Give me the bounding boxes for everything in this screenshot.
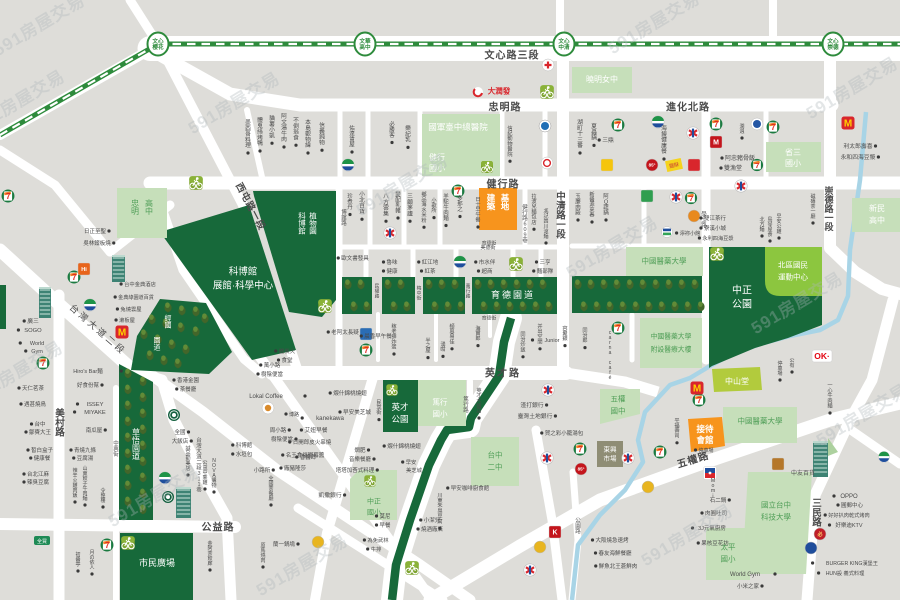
svg-text:康: 康 <box>661 141 667 149</box>
svg-text:中友百貨: 中友百貨 <box>791 469 815 477</box>
svg-text:英才路: 英才路 <box>484 367 521 380</box>
svg-text:春: 春 <box>589 211 594 219</box>
svg-text:銀: 銀 <box>562 334 567 342</box>
svg-text:院: 院 <box>507 150 513 158</box>
svg-text:香醬郎: 香醬郎 <box>300 453 317 461</box>
svg-text:櫻花: 櫻花 <box>151 43 164 51</box>
svg-text:經: 經 <box>165 313 172 322</box>
svg-text:科博館: 科博館 <box>229 265 258 277</box>
svg-text:蛋: 蛋 <box>391 343 396 351</box>
svg-text:樂: 樂 <box>405 124 411 132</box>
svg-text:食: 食 <box>767 231 772 238</box>
svg-text:飩: 飩 <box>319 133 325 141</box>
svg-text:科博館: 科博館 <box>236 441 253 449</box>
svg-text:雙江茶行: 雙江茶行 <box>704 214 727 222</box>
svg-text:茅: 茅 <box>407 204 413 212</box>
svg-text:高中: 高中 <box>359 43 371 51</box>
svg-text:é: é <box>609 375 612 381</box>
svg-text:鮮魚北王蒼鮮肉: 鮮魚北王蒼鮮肉 <box>599 562 638 570</box>
svg-text:園: 園 <box>154 336 161 344</box>
svg-text:早餐: 早餐 <box>379 521 391 529</box>
svg-text:台中: 台中 <box>34 420 45 428</box>
svg-text:鍋: 鍋 <box>591 134 597 142</box>
svg-text:文華: 文華 <box>359 37 371 45</box>
svg-text:信: 信 <box>319 121 325 129</box>
svg-text:雙漁堂: 雙漁堂 <box>724 164 742 172</box>
svg-text:HUN設 義式料理: HUN設 義式料理 <box>826 569 865 577</box>
svg-text:7: 7 <box>771 123 776 132</box>
svg-text:台中金典酒店: 台中金典酒店 <box>124 280 156 288</box>
svg-text:音樂餐廳: 音樂餐廳 <box>349 455 372 463</box>
svg-text:司: 司 <box>674 432 679 439</box>
svg-text:春友海鮮餐廳: 春友海鮮餐廳 <box>598 549 632 557</box>
svg-text:亭: 亭 <box>75 561 80 568</box>
svg-text:文心路三段: 文心路三段 <box>485 49 540 62</box>
svg-text:之: 之 <box>457 205 463 213</box>
svg-text:凱: 凱 <box>269 131 275 139</box>
svg-text:海: 海 <box>661 124 667 132</box>
svg-text:文: 文 <box>281 118 287 126</box>
svg-text:物: 物 <box>211 482 216 489</box>
svg-text:蘭一鍋塢: 蘭一鍋塢 <box>273 540 296 548</box>
svg-text:廳: 廳 <box>268 495 273 502</box>
svg-text:BURGER KING漢堡王: BURGER KING漢堡王 <box>826 559 878 567</box>
svg-text:永利四海豆漿: 永利四海豆漿 <box>702 234 733 242</box>
svg-text:廳: 廳 <box>810 213 815 220</box>
svg-text:中: 中 <box>145 206 153 216</box>
svg-text:小: 小 <box>269 126 275 134</box>
svg-text:艾妞早餐: 艾妞早餐 <box>304 426 327 434</box>
svg-text:郎: 郎 <box>582 336 587 344</box>
svg-text:番: 番 <box>577 142 583 149</box>
svg-text:7: 7 <box>714 120 719 129</box>
svg-text:7: 7 <box>364 346 369 355</box>
svg-text:麵: 麵 <box>443 214 449 222</box>
svg-text:鴨: 鴨 <box>257 139 263 147</box>
svg-text:早安: 早安 <box>406 458 417 466</box>
svg-text:Hiro's Bar麵: Hiro's Bar麵 <box>73 367 103 375</box>
svg-text:英才: 英才 <box>391 402 408 412</box>
svg-text:7: 7 <box>689 194 693 203</box>
svg-text:義: 義 <box>319 127 325 135</box>
svg-text:地: 地 <box>501 201 510 211</box>
svg-text:台北江麻: 台北江麻 <box>27 470 50 478</box>
svg-text:牛排: 牛排 <box>371 545 382 553</box>
svg-text:紅江地: 紅江地 <box>422 258 439 266</box>
svg-text:7: 7 <box>456 187 461 196</box>
svg-text:顧: 顧 <box>407 198 413 206</box>
svg-text:接待: 接待 <box>696 424 714 434</box>
svg-text:食堂: 食堂 <box>281 356 293 364</box>
svg-text:水垣包: 水垣包 <box>236 450 253 458</box>
svg-text:7: 7 <box>658 448 663 457</box>
svg-text:小米之家: 小米之家 <box>737 582 760 590</box>
svg-text:ISSEY: ISSEY <box>86 402 103 408</box>
svg-text:段: 段 <box>824 221 834 232</box>
svg-text:忠明路: 忠明路 <box>489 101 522 114</box>
svg-text:飯: 飯 <box>72 492 77 499</box>
svg-text:85°: 85° <box>578 467 585 472</box>
svg-text:豆腐湯: 豆腐湯 <box>77 454 94 462</box>
svg-text:全國: 全國 <box>174 428 186 436</box>
svg-text:餐: 餐 <box>475 216 481 224</box>
svg-text:阿忠豬骨飯: 阿忠豬骨飯 <box>725 154 755 162</box>
svg-text:麵部隊: 麵部隊 <box>537 267 554 275</box>
svg-text:M: M <box>693 383 701 394</box>
svg-text:客: 客 <box>389 131 395 139</box>
svg-text:全買: 全買 <box>37 538 47 545</box>
svg-text:道: 道 <box>132 451 140 461</box>
svg-text:湖: 湖 <box>577 118 583 126</box>
svg-text:公益路: 公益路 <box>202 521 235 534</box>
svg-text:燒酒廠店: 燒酒廠店 <box>421 525 444 533</box>
svg-text:為免武林: 為免武林 <box>367 536 389 544</box>
svg-text:高中: 高中 <box>869 215 885 225</box>
svg-text:文心: 文心 <box>558 37 570 45</box>
svg-text:十: 十 <box>577 130 583 138</box>
svg-text:煨什錦桃燒翅: 煨什錦桃燒翅 <box>333 389 367 397</box>
svg-text:曉明女中: 曉明女中 <box>586 74 618 84</box>
svg-text:健康: 健康 <box>386 267 398 275</box>
svg-text:廬: 廬 <box>407 209 413 217</box>
svg-text:餐: 餐 <box>661 147 667 155</box>
svg-text:薯: 薯 <box>269 120 275 128</box>
svg-text:日開郎皮火串燒: 日開郎皮火串燒 <box>293 438 332 446</box>
svg-text:絲: 絲 <box>257 128 263 136</box>
svg-text:好樂迪KTV: 好樂迪KTV <box>835 521 863 529</box>
svg-text:兔燒雲屋: 兔燒雲屋 <box>120 305 141 313</box>
svg-text:丹: 丹 <box>347 204 353 211</box>
svg-text:巷: 巷 <box>196 485 202 493</box>
svg-text:辣臭豆腐: 辣臭豆腐 <box>27 478 50 486</box>
svg-text:萬小路: 萬小路 <box>264 361 281 369</box>
svg-text:晨香早午餐: 晨香早午餐 <box>364 332 392 340</box>
svg-text:阿: 阿 <box>281 112 287 120</box>
svg-text:廣三: 廣三 <box>27 317 39 325</box>
svg-text:OPPO: OPPO <box>840 494 858 500</box>
svg-text:牛: 牛 <box>281 129 287 137</box>
svg-text:中國醫藥大學: 中國醫藥大學 <box>738 416 783 426</box>
svg-text:國小: 國小 <box>785 159 801 168</box>
svg-text:果核豆花坊: 果核豆花坊 <box>701 539 729 547</box>
svg-text:日正至聖: 日正至聖 <box>84 228 107 235</box>
svg-text:鬼: 鬼 <box>257 122 263 130</box>
svg-text:大潤發: 大潤發 <box>488 86 511 96</box>
svg-text:文心: 文心 <box>827 37 839 45</box>
svg-text:湯: 湯 <box>281 124 287 132</box>
svg-text:貓: 貓 <box>269 114 275 122</box>
svg-text:國中: 國中 <box>611 406 626 416</box>
svg-text:巷: 巷 <box>522 236 528 244</box>
svg-text:7: 7 <box>616 324 621 333</box>
svg-text:附設醫療大樓: 附設醫療大樓 <box>651 344 692 353</box>
svg-text:麵: 麵 <box>82 495 87 502</box>
svg-text:食: 食 <box>293 133 299 141</box>
svg-text:Hi: Hi <box>81 267 87 273</box>
svg-text:烤: 烤 <box>257 133 263 141</box>
svg-text:SOGO: SOGO <box>24 328 42 334</box>
svg-text:有: 有 <box>789 362 794 369</box>
svg-text:週: 週 <box>739 128 744 135</box>
svg-text:台中: 台中 <box>488 450 503 460</box>
svg-text:渣打銀行: 渣打銀行 <box>520 401 543 409</box>
svg-text:大阪燒急速烤: 大阪燒急速烤 <box>595 536 629 544</box>
svg-text:天仁茗茶: 天仁茗茶 <box>22 384 45 392</box>
svg-text:中清: 中清 <box>558 43 570 51</box>
svg-text:遇甚燒鳥: 遇甚燒鳥 <box>24 400 47 408</box>
svg-text:屋: 屋 <box>425 347 430 354</box>
svg-text:館: 館 <box>298 226 306 236</box>
svg-text:7: 7 <box>72 273 77 282</box>
svg-text:園: 園 <box>309 227 317 236</box>
svg-text:7: 7 <box>6 192 11 201</box>
svg-text:公園: 公園 <box>391 414 408 424</box>
svg-text:物: 物 <box>305 135 311 143</box>
svg-text:大飯店: 大飯店 <box>172 437 189 445</box>
svg-text:饅: 饅 <box>661 130 667 138</box>
svg-text:南瓜屋: 南瓜屋 <box>86 426 103 434</box>
svg-text:樹陰便當: 樹陰便當 <box>261 370 284 378</box>
svg-text:M: M <box>118 327 126 338</box>
svg-text:臺灣土地銀行: 臺灣土地銀行 <box>518 412 553 420</box>
svg-text:街: 街 <box>417 294 422 301</box>
svg-text:雞: 雞 <box>776 228 781 235</box>
svg-text:路: 路 <box>812 516 822 528</box>
svg-text:文心: 文心 <box>152 37 164 45</box>
svg-text:本: 本 <box>305 118 311 126</box>
svg-text:料: 料 <box>245 135 251 143</box>
svg-text:Junior: Junior <box>545 338 560 344</box>
svg-text:東興: 東興 <box>604 444 618 453</box>
svg-text:鍋: 鍋 <box>603 208 609 216</box>
svg-text:殿: 殿 <box>575 209 581 216</box>
svg-text:皙白盒子: 皙白盒子 <box>31 446 54 454</box>
svg-text:國: 國 <box>165 321 172 329</box>
svg-text:物: 物 <box>319 138 325 146</box>
svg-text:所: 所 <box>431 206 436 214</box>
svg-text:店: 店 <box>476 407 481 415</box>
svg-text:肉: 肉 <box>260 557 265 564</box>
svg-text:路: 路 <box>466 292 471 299</box>
svg-text:K: K <box>552 529 557 536</box>
svg-text:樓: 樓 <box>100 497 105 504</box>
svg-text:寮溪小城: 寮溪小城 <box>704 224 727 232</box>
svg-text:路: 路 <box>575 527 581 535</box>
svg-text:停車場: 停車場 <box>698 447 713 454</box>
svg-text:健行路: 健行路 <box>487 178 520 191</box>
svg-text:北區國民: 北區國民 <box>778 261 808 270</box>
svg-text:段: 段 <box>556 228 566 240</box>
svg-text:煨什錦桃燒翅: 煨什錦桃燒翅 <box>387 442 421 450</box>
svg-text:市水伴: 市水伴 <box>479 258 496 266</box>
svg-text:廊: 廊 <box>207 560 212 567</box>
svg-text:展館·科學中心: 展館·科學中心 <box>213 279 274 291</box>
svg-text:7: 7 <box>105 541 110 550</box>
svg-text:咁: 咁 <box>440 345 445 353</box>
svg-text:市民廣場: 市民廣場 <box>139 557 175 568</box>
svg-text:7: 7 <box>616 121 621 130</box>
svg-text:國立台中: 國立台中 <box>761 500 791 510</box>
svg-text:圓郵中心: 圓郵中心 <box>841 501 864 509</box>
svg-text:街: 街 <box>376 408 381 416</box>
svg-text:健: 健 <box>661 136 667 144</box>
svg-text:國小: 國小 <box>721 555 736 564</box>
svg-text:好好扒肉乾式烤肉: 好好扒肉乾式烤肉 <box>828 511 870 519</box>
svg-text:博路: 博路 <box>289 411 299 418</box>
svg-text:會館: 會館 <box>695 435 714 445</box>
svg-text:觀: 觀 <box>305 130 311 138</box>
svg-text:好食份幫: 好食份幫 <box>77 381 100 389</box>
svg-text:乳: 乳 <box>405 136 411 144</box>
svg-text:老阿太長疑: 老阿太長疑 <box>331 328 359 336</box>
svg-text:飯: 飯 <box>520 345 525 353</box>
svg-text:魯味: 魯味 <box>386 258 398 266</box>
svg-text:歐文書發具: 歐文書發具 <box>341 254 369 262</box>
svg-text:間: 間 <box>537 338 542 345</box>
svg-text:路: 路 <box>463 406 469 414</box>
svg-text:塔塔加莟式料理: 塔塔加莟式料理 <box>336 466 375 474</box>
svg-text:中國醫藥大學: 中國醫藥大學 <box>651 331 692 340</box>
svg-text:超商: 超商 <box>481 267 493 275</box>
svg-text:進化北路: 進化北路 <box>666 101 710 114</box>
svg-text:倒: 倒 <box>293 122 299 130</box>
svg-text:豬: 豬 <box>395 206 401 214</box>
svg-text:中正: 中正 <box>367 496 381 505</box>
svg-text:明: 明 <box>131 207 139 216</box>
svg-text:築: 築 <box>486 201 496 211</box>
svg-text:新民: 新民 <box>869 203 885 213</box>
svg-text:美芝城: 美芝城 <box>406 466 423 474</box>
svg-text:7: 7 <box>755 161 759 170</box>
svg-text:佳: 佳 <box>449 337 454 345</box>
svg-text:香港金園: 香港金園 <box>177 376 200 384</box>
svg-text:育德街: 育德街 <box>482 240 497 247</box>
svg-text:國小: 國小 <box>433 410 448 419</box>
svg-text:OK·: OK· <box>814 351 830 361</box>
svg-text:必: 必 <box>816 531 822 538</box>
svg-text:崇德: 崇德 <box>827 43 839 51</box>
svg-text:路: 路 <box>55 426 65 438</box>
svg-text:中山堂: 中山堂 <box>725 376 749 386</box>
svg-text:早安咖啡廚食館: 早安咖啡廚食館 <box>451 484 490 492</box>
svg-text:鄒賚大王: 鄒賚大王 <box>29 428 52 436</box>
svg-text:道: 道 <box>154 342 161 351</box>
svg-text:場: 場 <box>777 370 782 377</box>
svg-text:青燒九條: 青燒九條 <box>74 446 97 454</box>
svg-text:雞: 雞 <box>202 479 207 486</box>
svg-text:紅茶: 紅茶 <box>424 267 436 275</box>
svg-text:集: 集 <box>383 209 389 217</box>
svg-text:樹陰便當: 樹陰便當 <box>271 435 294 443</box>
svg-text:運動中心: 運動中心 <box>778 272 808 282</box>
svg-text:World Gym: World Gym <box>730 572 760 578</box>
svg-text:麵: 麵 <box>827 402 832 410</box>
svg-text:公園: 公園 <box>732 299 752 311</box>
svg-text:中正: 中正 <box>732 284 752 297</box>
svg-text:85°: 85° <box>649 163 656 168</box>
svg-text:緯: 緯 <box>305 141 311 149</box>
svg-text:店: 店 <box>531 218 536 226</box>
svg-text:育德街: 育德街 <box>482 315 497 322</box>
svg-text:三鼎: 三鼎 <box>602 137 614 144</box>
svg-text:理: 理 <box>245 142 251 149</box>
svg-text:永和四海豆漿: 永和四海豆漿 <box>841 153 876 161</box>
svg-text:街: 街 <box>113 450 119 458</box>
svg-text:Lokal Coffee: Lokal Coffee <box>249 394 283 400</box>
svg-text:市場: 市場 <box>604 453 618 462</box>
svg-text:育德園道: 育德園道 <box>491 289 535 300</box>
svg-text:莫尼: 莫尼 <box>379 512 391 520</box>
svg-text:粉: 粉 <box>421 216 427 224</box>
svg-text:紀: 紀 <box>405 130 411 138</box>
svg-text:路: 路 <box>375 292 380 299</box>
svg-text:凱撒銀行: 凱撒銀行 <box>318 491 341 499</box>
svg-text:小路所: 小路所 <box>254 466 271 474</box>
svg-text:7: 7 <box>578 445 583 454</box>
svg-text:早安美芝城: 早安美芝城 <box>343 408 371 416</box>
svg-text:體: 體 <box>257 116 263 124</box>
svg-text:篤行: 篤行 <box>433 397 448 407</box>
svg-text:省三: 省三 <box>785 147 801 157</box>
svg-text:廠豬隆莎: 廠豬隆莎 <box>284 464 307 472</box>
svg-text:M: M <box>844 118 852 129</box>
svg-text:濘祢小館: 濘祢小館 <box>680 229 701 237</box>
svg-text:中國醫藥大學: 中國醫藥大學 <box>642 256 687 266</box>
svg-text:燜肥: 燜肥 <box>354 446 366 454</box>
svg-text:翁: 翁 <box>293 128 299 136</box>
svg-text:MIYAKE: MIYAKE <box>84 410 106 416</box>
svg-text:金典綠園道百貨: 金典綠園道百貨 <box>118 294 154 301</box>
svg-text:周小路: 周小路 <box>270 426 287 434</box>
svg-text:麵: 麵 <box>759 226 764 233</box>
svg-text:二中: 二中 <box>488 462 503 472</box>
svg-text:麗炭火: 麗炭火 <box>279 348 296 355</box>
svg-text:健康餐: 健康餐 <box>34 454 51 462</box>
svg-text:茶餐廳: 茶餐廳 <box>180 385 197 393</box>
svg-text:蟲: 蟲 <box>591 128 597 136</box>
svg-text:kanekawa: kanekawa <box>316 415 344 422</box>
svg-text:肉: 肉 <box>281 135 287 143</box>
svg-text:吳林鐵板燒: 吳林鐵板燒 <box>83 239 111 247</box>
svg-text:賀之彩小籠湯包: 賀之彩小籠湯包 <box>545 429 584 437</box>
svg-text:國軍臺中總醫院: 國軍臺中總醫院 <box>428 122 488 132</box>
svg-text:a: a <box>609 350 612 356</box>
svg-text:M: M <box>713 139 719 146</box>
svg-text:科技大學: 科技大學 <box>761 512 791 522</box>
svg-text:人: 人 <box>89 565 94 571</box>
svg-text:三亨: 三亨 <box>539 258 551 266</box>
svg-text:郎: 郎 <box>475 334 480 342</box>
svg-text:小潔兒: 小潔兒 <box>424 516 441 524</box>
svg-text:路: 路 <box>341 219 347 227</box>
svg-text:瀨板屋: 瀨板屋 <box>119 316 135 324</box>
svg-text:五權: 五權 <box>611 394 626 404</box>
svg-text:島: 島 <box>305 124 311 132</box>
svg-text:7: 7 <box>697 396 702 405</box>
svg-text:利太郎壽喜: 利太郎壽喜 <box>844 142 873 150</box>
svg-text:麵: 麵 <box>543 233 548 240</box>
svg-text:屋: 屋 <box>349 141 355 148</box>
